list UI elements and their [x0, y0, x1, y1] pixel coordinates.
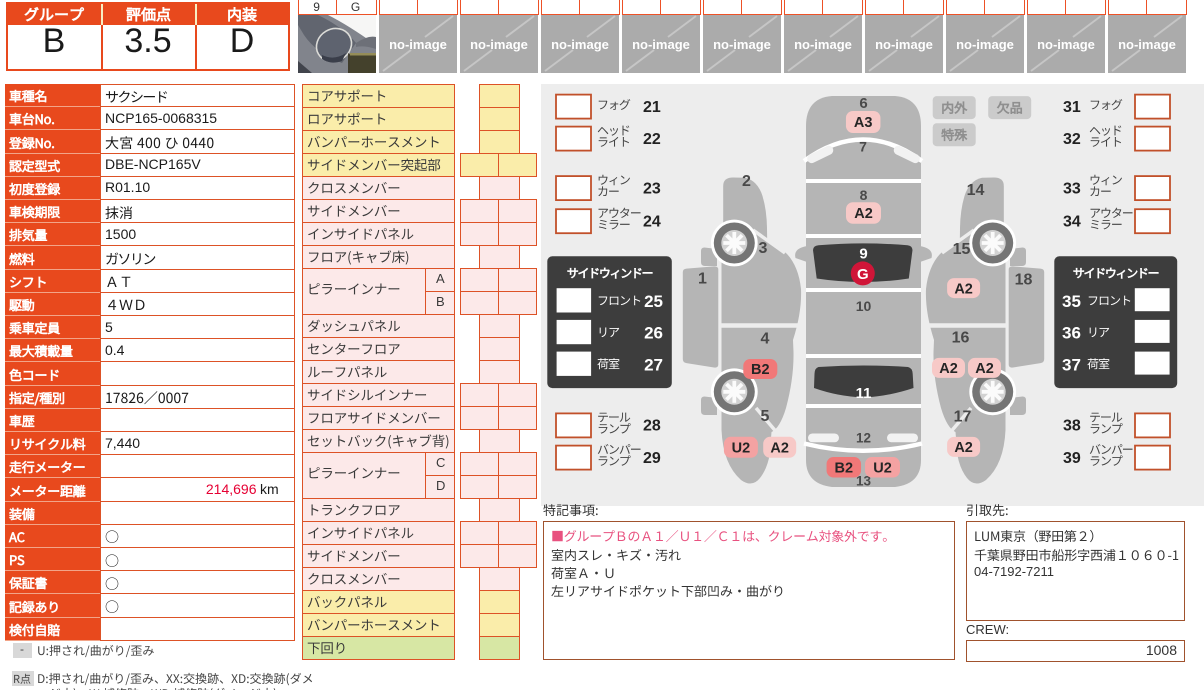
svg-text:25: 25 [644, 292, 663, 311]
svg-text:A2: A2 [939, 361, 958, 377]
svg-text:U2: U2 [873, 461, 892, 477]
svg-text:G: G [857, 266, 869, 283]
svg-text:17: 17 [954, 409, 972, 426]
svg-text:15: 15 [953, 241, 971, 258]
svg-text:no-image: no-image [389, 37, 447, 52]
svg-text:36: 36 [1062, 324, 1081, 343]
svg-text:37: 37 [1062, 355, 1081, 374]
svg-text:31: 31 [1063, 99, 1081, 116]
svg-text:8: 8 [860, 187, 868, 203]
svg-text:A2: A2 [975, 361, 994, 377]
svg-text:29: 29 [643, 450, 661, 467]
svg-text:5: 5 [761, 408, 770, 425]
svg-text:1: 1 [698, 271, 707, 288]
svg-text:9: 9 [859, 246, 867, 263]
svg-text:6: 6 [859, 95, 867, 112]
svg-text:32: 32 [1063, 131, 1081, 148]
svg-text:28: 28 [643, 418, 661, 435]
svg-text:14: 14 [967, 182, 985, 199]
svg-text:A3: A3 [854, 115, 873, 131]
svg-text:38: 38 [1063, 418, 1081, 435]
svg-text:no-image: no-image [470, 37, 528, 52]
svg-text:no-image: no-image [1037, 37, 1095, 52]
svg-text:A2: A2 [954, 281, 973, 297]
svg-text:4: 4 [761, 331, 770, 348]
svg-text:39: 39 [1063, 450, 1081, 467]
svg-text:33: 33 [1063, 180, 1081, 197]
svg-text:A2: A2 [954, 440, 973, 456]
svg-text:23: 23 [643, 180, 661, 197]
svg-text:18: 18 [1015, 272, 1033, 289]
svg-text:7: 7 [859, 139, 867, 155]
svg-text:26: 26 [644, 324, 663, 343]
svg-text:34: 34 [1063, 214, 1081, 231]
svg-text:3: 3 [759, 240, 768, 257]
svg-text:22: 22 [643, 131, 661, 148]
svg-text:A2: A2 [854, 206, 873, 222]
svg-text:12: 12 [856, 431, 871, 446]
svg-text:no-image: no-image [632, 37, 690, 52]
svg-text:no-image: no-image [551, 37, 609, 52]
svg-text:no-image: no-image [713, 37, 771, 52]
svg-text:35: 35 [1062, 292, 1081, 311]
svg-text:B2: B2 [751, 362, 770, 378]
svg-text:no-image: no-image [956, 37, 1014, 52]
svg-text:24: 24 [643, 214, 661, 231]
svg-text:A2: A2 [770, 441, 789, 457]
svg-text:no-image: no-image [794, 37, 852, 52]
svg-text:2: 2 [742, 173, 751, 190]
svg-text:no-image: no-image [1118, 37, 1176, 52]
svg-text:11: 11 [856, 385, 872, 402]
svg-text:27: 27 [644, 355, 663, 374]
svg-text:U2: U2 [732, 441, 751, 457]
svg-text:21: 21 [643, 99, 661, 116]
svg-text:no-image: no-image [875, 37, 933, 52]
svg-text:16: 16 [952, 330, 970, 347]
svg-text:B2: B2 [835, 461, 854, 477]
svg-text:10: 10 [856, 298, 872, 314]
